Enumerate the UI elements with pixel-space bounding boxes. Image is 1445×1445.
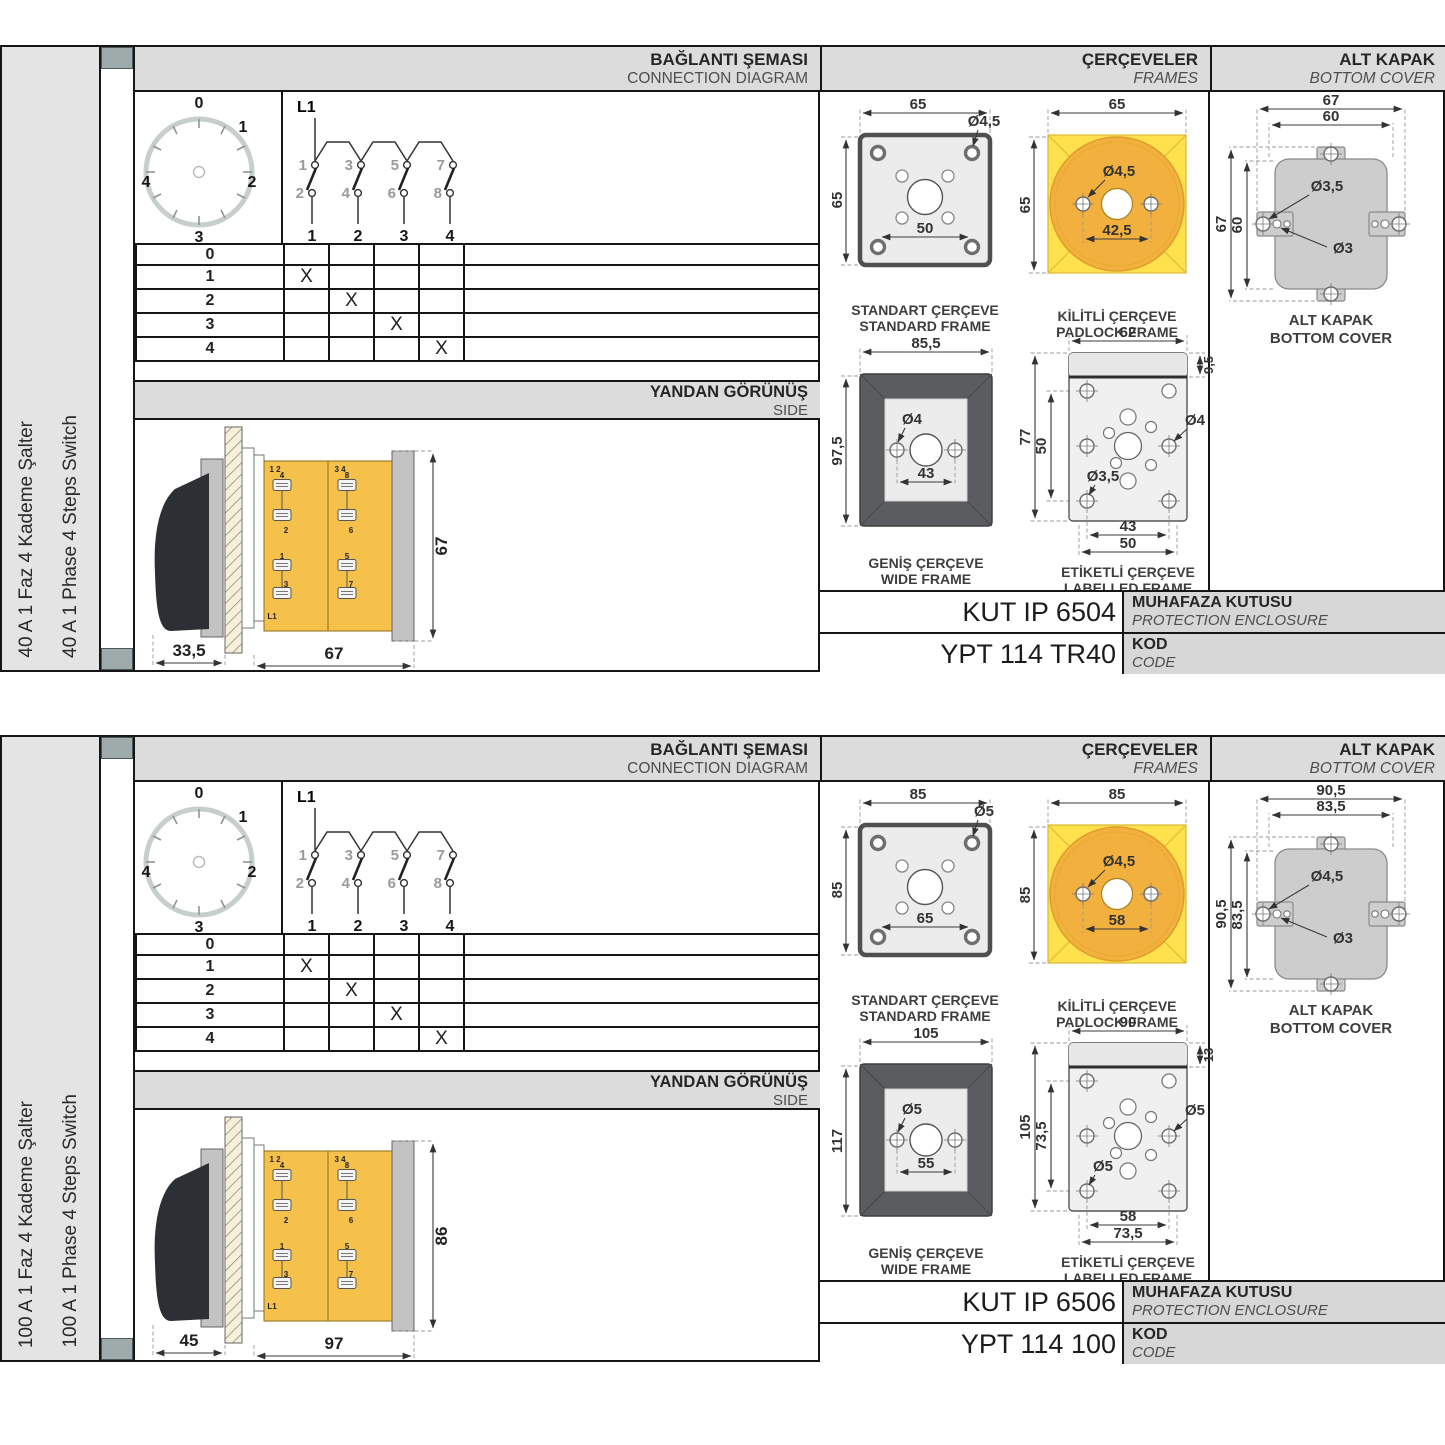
svg-text:ETİKETLİ ÇERÇEVE: ETİKETLİ ÇERÇEVE — [1061, 564, 1195, 580]
svg-text:Ø5: Ø5 — [974, 803, 994, 820]
svg-text:1: 1 — [280, 552, 285, 561]
step-table: 0 1X 2X 3X 4X — [135, 933, 820, 1052]
svg-text:73,5: 73,5 — [1033, 1121, 1050, 1150]
dial-pos-4: 4 — [142, 864, 151, 881]
contact-poles: 1 2 1 3 4 2 — [296, 847, 457, 935]
svg-text:117: 117 — [829, 1129, 846, 1153]
connection-title-tr: BAĞLANTI ŞEMASI — [135, 740, 808, 760]
svg-text:5: 5 — [345, 1242, 350, 1251]
wide-frame-diagram: 85,5 97,5 Ø4 43 GENİŞ ÇERÇEVE WIDE FRAME — [832, 334, 1017, 594]
svg-text:Ø5: Ø5 — [1093, 1158, 1113, 1175]
product-name-turkish: 100 A 1 Faz 4 Kademe Şalter — [16, 1101, 38, 1348]
switch-handle — [155, 1163, 209, 1321]
padlock-frame-diagram: 65 65 Ø4,5 42,5 KİLİTLİ ÇERÇEVE PADLOCK … — [1020, 97, 1205, 339]
svg-text:85: 85 — [1017, 887, 1034, 904]
svg-text:6: 6 — [349, 1216, 354, 1225]
dial-pos-1: 1 — [239, 809, 248, 826]
svg-text:WIDE FRAME: WIDE FRAME — [881, 571, 971, 587]
svg-text:65: 65 — [1109, 96, 1126, 113]
dial-pos-2: 2 — [248, 174, 257, 191]
svg-text:GENİŞ ÇERÇEVE: GENİŞ ÇERÇEVE — [868, 555, 983, 571]
dim-body-height: 67 — [432, 537, 451, 556]
svg-text:L1: L1 — [267, 612, 277, 621]
feed-label: L1 — [297, 789, 316, 806]
dim-handle-depth: 45 — [180, 1331, 199, 1350]
standard-frame-diagram: 85 85 Ø5 65 STANDART ÇERÇEVE STANDARD FR… — [832, 787, 1017, 1024]
svg-text:Ø5: Ø5 — [1185, 1102, 1205, 1119]
cover-header: ALT KAPAK BOTTOM COVER — [1210, 47, 1445, 92]
contact-poles: 1 2 1 3 4 2 — [296, 157, 457, 245]
side-view-header: YANDAN GÖRÜNÜŞ SIDE — [135, 380, 820, 420]
svg-text:3: 3 — [345, 847, 353, 864]
product-label-band: 40 A 1 Faz 4 Kademe Şalter 40 A 1 Phase … — [0, 45, 101, 672]
svg-text:42,5: 42,5 — [1102, 222, 1131, 239]
dim-body-depth: 97 — [325, 1334, 344, 1353]
svg-text:Ø4,5: Ø4,5 — [1103, 853, 1136, 870]
dim-body-depth: 67 — [325, 644, 344, 663]
connection-title-tr: BAĞLANTI ŞEMASI — [135, 50, 808, 70]
svg-text:65: 65 — [1017, 197, 1034, 214]
frames-header: ÇERÇEVELER FRAMES — [820, 737, 1210, 782]
svg-text:3: 3 — [284, 1270, 289, 1279]
svg-text:60: 60 — [1229, 217, 1246, 234]
cover-title-en: BOTTOM COVER — [1212, 70, 1435, 88]
svg-text:85: 85 — [910, 786, 927, 803]
connection-header: BAĞLANTI ŞEMASI CONNECTION DIAGRAM — [135, 737, 820, 782]
bottom-cover-diagram: 90,5 83,5 90,5 83,5 Ø4,5 Ø3 — [1217, 787, 1427, 1042]
svg-text:85: 85 — [1109, 786, 1126, 803]
cover-title-tr: ALT KAPAK — [1212, 50, 1435, 70]
dial-pos-1: 1 — [239, 119, 248, 136]
svg-text:4: 4 — [342, 185, 351, 202]
binder-tab-bottom — [101, 1338, 133, 1360]
rotary-dial-diagram: 0 1 2 3 4 — [135, 782, 283, 933]
svg-text:90,5: 90,5 — [1316, 782, 1345, 799]
svg-text:9,5: 9,5 — [1201, 356, 1216, 374]
contact-cell: L1 1 2 1 — [283, 92, 818, 243]
svg-text:105: 105 — [1017, 1114, 1034, 1139]
svg-text:83,5: 83,5 — [1229, 900, 1246, 929]
enclosure-label: MUHAFAZA KUTUSU PROTECTION ENCLOSURE — [1122, 1282, 1445, 1322]
product-label-band: 100 A 1 Faz 4 Kademe Şalter 100 A 1 Phas… — [0, 735, 101, 1362]
code-value: YPT 114 100 — [820, 1324, 1122, 1364]
enclosure-label: MUHAFAZA KUTUSU PROTECTION ENCLOSURE — [1122, 592, 1445, 632]
catalog-page: 40 A 1 Faz 4 Kademe Şalter 40 A 1 Phase … — [0, 0, 1445, 1445]
svg-text:50: 50 — [1120, 535, 1137, 552]
side-view-diagram: 1 2 3 4 4 2 1 3 8 6 5 7 L1 33,5 67 — [145, 423, 575, 673]
frames-title-en: FRAMES — [822, 760, 1198, 778]
svg-text:Ø3,5: Ø3,5 — [1087, 468, 1120, 485]
binder-gutter — [101, 735, 133, 1362]
svg-text:65: 65 — [829, 192, 846, 209]
svg-text:GENİŞ ÇERÇEVE: GENİŞ ÇERÇEVE — [868, 1245, 983, 1261]
dim-handle-depth: 33,5 — [172, 641, 205, 660]
code-row: YPT 114 TR40 KOD CODE — [820, 632, 1445, 674]
dial-cell: 0 1 2 3 4 — [135, 92, 283, 243]
svg-text:85,5: 85,5 — [911, 335, 940, 352]
svg-text:43: 43 — [1120, 518, 1137, 535]
svg-text:Ø3: Ø3 — [1333, 930, 1353, 947]
table-row: 4X — [136, 337, 819, 361]
product-panel: 40 A 1 Faz 4 Kademe Şalter 40 A 1 Phase … — [0, 45, 1445, 672]
product-name-turkish: 40 A 1 Faz 4 Kademe Şalter — [16, 421, 38, 658]
svg-text:8: 8 — [345, 471, 350, 480]
binder-gutter — [101, 45, 133, 672]
frames-title-en: FRAMES — [822, 70, 1198, 88]
code-value: YPT 114 TR40 — [820, 634, 1122, 674]
enclosure-value: KUT IP 6506 — [820, 1282, 1122, 1322]
side-title-tr: YANDAN GÖRÜNÜŞ — [135, 383, 808, 402]
connection-header: BAĞLANTI ŞEMASI CONNECTION DIAGRAM — [135, 47, 820, 92]
svg-text:7: 7 — [437, 157, 445, 174]
svg-text:83,5: 83,5 — [1316, 798, 1345, 815]
svg-text:58: 58 — [1120, 1208, 1137, 1225]
svg-text:58: 58 — [1109, 912, 1126, 929]
step-table: 0 1X 2X 3X 4X — [135, 243, 820, 362]
cover-title-en: BOTTOM COVER — [1212, 760, 1435, 778]
svg-text:4: 4 — [280, 1161, 285, 1170]
table-row: 0 — [136, 244, 819, 265]
svg-text:STANDART ÇERÇEVE: STANDART ÇERÇEVE — [851, 302, 999, 318]
svg-text:KİLİTLİ ÇERÇEVE: KİLİTLİ ÇERÇEVE — [1057, 998, 1176, 1014]
table-row: 3X — [136, 1003, 819, 1027]
mounting-panel-hatch — [225, 1117, 242, 1343]
svg-text:73,5: 73,5 — [1113, 1225, 1142, 1242]
svg-text:L1: L1 — [267, 1302, 277, 1311]
svg-text:90: 90 — [1120, 1014, 1137, 1031]
enclosure-value: KUT IP 6504 — [820, 592, 1122, 632]
svg-text:85: 85 — [829, 882, 846, 899]
svg-text:62: 62 — [1120, 324, 1137, 341]
svg-text:2: 2 — [284, 1216, 289, 1225]
frames-header: ÇERÇEVELER FRAMES — [820, 47, 1210, 92]
svg-text:Ø3,5: Ø3,5 — [1311, 178, 1344, 195]
svg-text:5: 5 — [391, 157, 399, 174]
svg-text:4: 4 — [342, 875, 351, 892]
svg-text:8: 8 — [434, 875, 442, 892]
product-name-english: 100 A 1 Phase 4 Steps Switch — [60, 1094, 82, 1348]
product-name-english: 40 A 1 Phase 4 Steps Switch — [60, 415, 82, 658]
svg-text:Ø4,5: Ø4,5 — [1103, 163, 1136, 180]
switch-handle — [155, 473, 209, 631]
svg-text:5: 5 — [391, 847, 399, 864]
svg-text:STANDARD FRAME: STANDARD FRAME — [859, 1008, 990, 1024]
connection-title-en: CONNECTION DIAGRAM — [135, 70, 808, 88]
svg-text:BOTTOM COVER: BOTTOM COVER — [1270, 330, 1392, 347]
svg-text:3: 3 — [284, 580, 289, 589]
svg-text:7: 7 — [349, 1270, 354, 1279]
svg-text:90,5: 90,5 — [1213, 899, 1230, 928]
contact-schematic: L1 1 2 1 — [283, 92, 603, 243]
table-row: 1X — [136, 955, 819, 979]
table-row: 2X — [136, 289, 819, 313]
table-row: 1X — [136, 265, 819, 289]
feed-label: L1 — [297, 99, 316, 116]
svg-text:4: 4 — [280, 471, 285, 480]
binder-tab-bottom — [101, 648, 133, 670]
svg-text:7: 7 — [437, 847, 445, 864]
datasheet-main: BAĞLANTI ŞEMASI CONNECTION DIAGRAM ÇERÇE… — [133, 45, 1445, 672]
binder-tab-top — [101, 47, 133, 69]
svg-text:50: 50 — [1033, 438, 1050, 455]
svg-text:Ø3: Ø3 — [1333, 240, 1353, 257]
svg-text:1: 1 — [280, 1242, 285, 1251]
svg-text:Ø4,5: Ø4,5 — [1311, 868, 1344, 885]
table-row: 0 — [136, 934, 819, 955]
svg-text:65: 65 — [917, 910, 934, 927]
code-row: YPT 114 100 KOD CODE — [820, 1322, 1445, 1364]
svg-text:6: 6 — [388, 185, 396, 202]
code-label: KOD CODE — [1122, 634, 1445, 674]
table-row: 2X — [136, 979, 819, 1003]
dim-body-height: 86 — [432, 1227, 451, 1246]
side-title-en: SIDE — [135, 1092, 808, 1109]
svg-text:2: 2 — [284, 526, 289, 535]
labelled-frame-diagram: 62 9,5 77 50 Ø4 — [1017, 329, 1217, 594]
datasheet-main: BAĞLANTI ŞEMASI CONNECTION DIAGRAM ÇERÇE… — [133, 735, 1445, 1362]
rotary-dial-diagram: 0 1 2 3 4 — [135, 92, 283, 243]
binder-tab-top — [101, 737, 133, 759]
svg-text:Ø4: Ø4 — [1185, 412, 1206, 429]
svg-text:Ø4,5: Ø4,5 — [968, 113, 1001, 130]
svg-text:1: 1 — [299, 157, 307, 174]
svg-text:8: 8 — [345, 1161, 350, 1170]
dial-pos-0: 0 — [195, 785, 204, 802]
svg-text:7: 7 — [349, 580, 354, 589]
svg-text:43: 43 — [918, 465, 935, 482]
frames-title-tr: ÇERÇEVELER — [822, 740, 1198, 760]
svg-text:ALT KAPAK: ALT KAPAK — [1289, 1002, 1374, 1019]
svg-text:105: 105 — [913, 1025, 938, 1042]
dial-pos-0: 0 — [195, 95, 204, 112]
side-title-tr: YANDAN GÖRÜNÜŞ — [135, 1073, 808, 1092]
table-row: 3X — [136, 313, 819, 337]
svg-text:67: 67 — [1323, 92, 1340, 109]
svg-text:BOTTOM COVER: BOTTOM COVER — [1270, 1020, 1392, 1037]
svg-text:STANDART ÇERÇEVE: STANDART ÇERÇEVE — [851, 992, 999, 1008]
enclosure-row: KUT IP 6504 MUHAFAZA KUTUSU PROTECTION E… — [820, 590, 1445, 632]
svg-text:1: 1 — [299, 847, 307, 864]
frames-title-tr: ÇERÇEVELER — [822, 50, 1198, 70]
bottom-cover-diagram: 67 60 67 60 Ø3,5 Ø3 ALT KA — [1217, 97, 1427, 352]
svg-text:WIDE FRAME: WIDE FRAME — [881, 1261, 971, 1277]
padlock-frame-diagram: 85 85 Ø4,5 58 KİLİTLİ ÇERÇEVE PADLOCK FR… — [1020, 787, 1205, 1029]
side-view-header: YANDAN GÖRÜNÜŞ SIDE — [135, 1070, 820, 1110]
svg-text:50: 50 — [917, 220, 934, 237]
svg-text:55: 55 — [918, 1155, 935, 1172]
side-title-en: SIDE — [135, 402, 808, 419]
side-view-diagram: 1 2 3 4 4 2 1 3 8 6 5 7 L1 45 97 — [145, 1113, 575, 1363]
svg-text:3: 3 — [345, 157, 353, 174]
wide-frame-diagram: 105 117 Ø5 55 GENİŞ ÇERÇEVE WIDE FRAME — [832, 1024, 1017, 1284]
code-label: KOD CODE — [1122, 1324, 1445, 1364]
cover-title-tr: ALT KAPAK — [1212, 740, 1435, 760]
svg-text:97,5: 97,5 — [829, 436, 846, 465]
dial-pos-2: 2 — [248, 864, 257, 881]
product-panel: 100 A 1 Faz 4 Kademe Şalter 100 A 1 Phas… — [0, 735, 1445, 1362]
dial-pos-4: 4 — [142, 174, 151, 191]
svg-text:2: 2 — [296, 875, 304, 892]
table-row: 4X — [136, 1027, 819, 1051]
dial-cell: 0 1 2 3 4 — [135, 782, 283, 933]
svg-text:8: 8 — [434, 185, 442, 202]
standard-frame-diagram: 65 65 Ø4,5 50 STANDART ÇERÇEVE STANDARD … — [832, 97, 1017, 334]
svg-text:6: 6 — [388, 875, 396, 892]
svg-text:67: 67 — [1213, 216, 1230, 233]
svg-text:2: 2 — [296, 185, 304, 202]
connection-title-en: CONNECTION DIAGRAM — [135, 760, 808, 778]
contact-schematic: L1 1 2 1 — [283, 782, 603, 933]
svg-text:5: 5 — [345, 552, 350, 561]
svg-text:13: 13 — [1201, 1048, 1216, 1062]
svg-text:ALT KAPAK: ALT KAPAK — [1289, 312, 1374, 329]
svg-text:KİLİTLİ ÇERÇEVE: KİLİTLİ ÇERÇEVE — [1057, 308, 1176, 324]
svg-text:77: 77 — [1017, 429, 1034, 446]
svg-text:6: 6 — [349, 526, 354, 535]
svg-text:Ø4: Ø4 — [902, 411, 923, 428]
svg-text:ETİKETLİ ÇERÇEVE: ETİKETLİ ÇERÇEVE — [1061, 1254, 1195, 1270]
contact-cell: L1 1 2 1 — [283, 782, 818, 933]
cover-header: ALT KAPAK BOTTOM COVER — [1210, 737, 1445, 782]
svg-text:60: 60 — [1323, 108, 1340, 125]
svg-text:STANDARD FRAME: STANDARD FRAME — [859, 318, 990, 334]
labelled-frame-diagram: 90 13 105 73,5 Ø5 — [1017, 1019, 1217, 1284]
mounting-panel-hatch — [225, 427, 242, 653]
svg-text:65: 65 — [910, 96, 927, 113]
svg-text:Ø5: Ø5 — [902, 1101, 922, 1118]
enclosure-row: KUT IP 6506 MUHAFAZA KUTUSU PROTECTION E… — [820, 1280, 1445, 1322]
